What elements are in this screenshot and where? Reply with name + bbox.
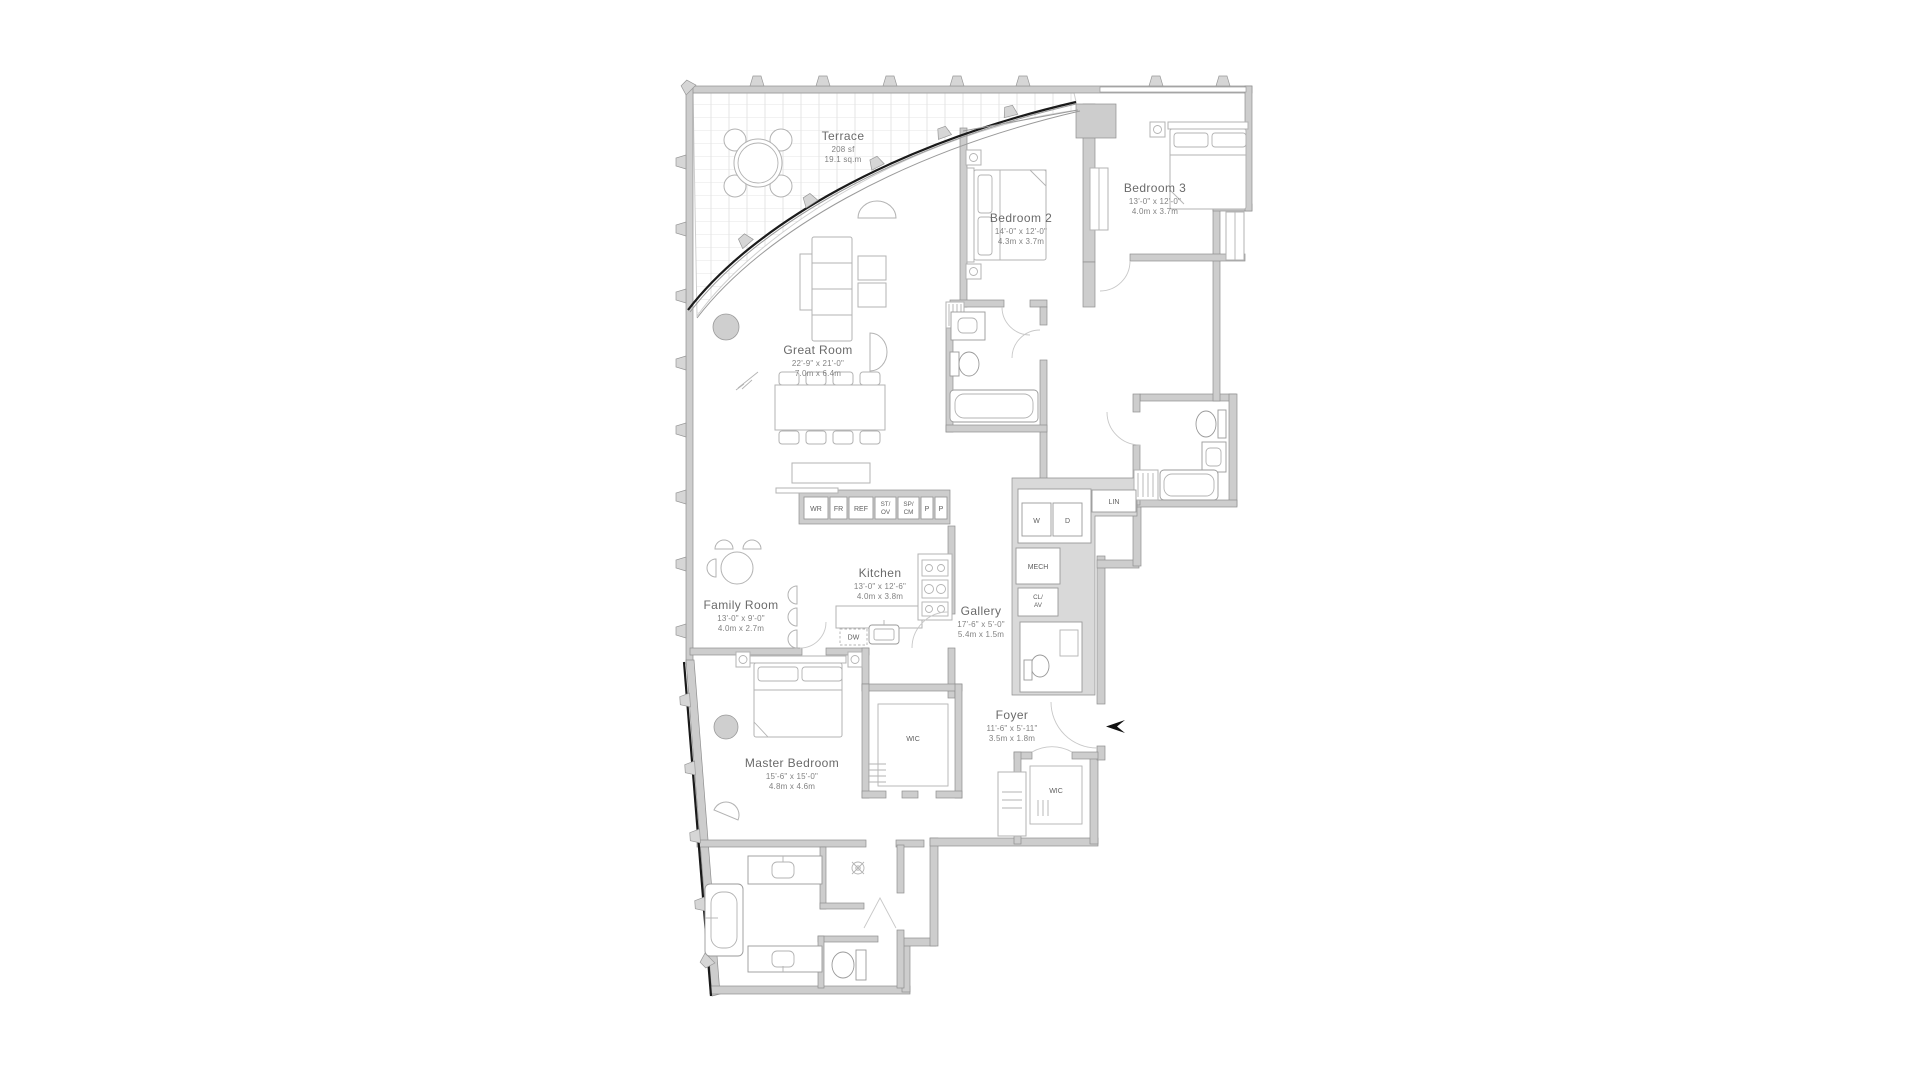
armchair	[714, 802, 739, 820]
telescope-icon	[736, 372, 758, 390]
appliance-label-cm: CM	[904, 509, 914, 516]
family-table	[721, 552, 753, 584]
svg-text:17'-6" x 5'-0": 17'-6" x 5'-0"	[957, 620, 1005, 629]
ottoman	[858, 283, 886, 307]
headboard	[967, 168, 974, 262]
closet-shelves	[868, 764, 886, 782]
stool	[788, 608, 797, 626]
vanity	[951, 312, 985, 340]
floor-plan-drawing: WR FR REF ST/ OV SP/ CM P P DW	[0, 0, 1920, 1080]
column	[713, 314, 739, 340]
appliance-label-fr: FR	[834, 506, 843, 513]
label-gallery: Gallery 17'-6" x 5'-0" 5.4m x 1.5m	[957, 604, 1005, 639]
label-foyer: Foyer 11'-6" x 5'-11" 3.5m x 1.8m	[986, 708, 1037, 743]
label-family-room: Family Room 13'-0" x 9'-0" 4.0m x 2.7m	[703, 598, 778, 633]
dryer-label: D	[1065, 518, 1070, 525]
svg-text:4.0m x 2.7m: 4.0m x 2.7m	[718, 624, 764, 633]
svg-text:Bedroom 2: Bedroom 2	[990, 211, 1052, 225]
bath-3-fixtures	[1134, 410, 1226, 500]
headboard	[1168, 122, 1248, 129]
appliance-label-wr: WR	[810, 506, 822, 513]
armchair	[870, 333, 887, 371]
foyer-wic-area: WIC	[998, 766, 1082, 836]
terrace-table	[734, 139, 782, 187]
closet-outline	[878, 704, 948, 786]
svg-text:4.3m x 3.7m: 4.3m x 3.7m	[998, 237, 1044, 246]
dining-table	[775, 385, 885, 430]
stool	[788, 586, 797, 604]
svg-text:13'-0" x 9'-0": 13'-0" x 9'-0"	[717, 614, 765, 623]
armchair	[858, 201, 896, 218]
chair	[707, 559, 716, 577]
nightstand	[848, 652, 862, 667]
headboard	[750, 656, 846, 663]
toilet	[832, 952, 854, 978]
svg-text:4.0m x 3.8m: 4.0m x 3.8m	[857, 592, 903, 601]
mech-label: MECH	[1028, 564, 1049, 571]
toilet	[959, 352, 979, 376]
av-label: AV	[1034, 602, 1043, 609]
powder-toilet	[1031, 655, 1049, 677]
chair	[743, 540, 761, 549]
dining-chair	[806, 431, 826, 444]
powder-tank	[1024, 660, 1032, 680]
column	[714, 715, 738, 739]
master-bedroom-furniture	[714, 652, 862, 820]
kitchen-shelf	[776, 488, 838, 493]
svg-text:208 sf: 208 sf	[832, 145, 856, 154]
svg-text:14'-0" x 12'-0": 14'-0" x 12'-0"	[995, 227, 1047, 236]
dining-chair	[860, 372, 880, 385]
toilet-tank	[856, 950, 866, 980]
appliance-label-sp: SP/	[903, 501, 913, 508]
bathtub	[950, 390, 1038, 422]
nightstand	[966, 150, 981, 165]
toilet-tank	[1218, 410, 1226, 438]
appliance-label-ov: OV	[881, 509, 891, 516]
cooktop-counter	[918, 554, 952, 620]
label-bedroom-3: Bedroom 3 13'-0" x 12'-0" 4.0m x 3.7m	[1124, 181, 1186, 216]
nightstand	[1150, 122, 1165, 137]
svg-text:4.0m x 3.7m: 4.0m x 3.7m	[1132, 207, 1178, 216]
svg-text:15'-6" x 15'-0": 15'-6" x 15'-0"	[766, 772, 818, 781]
master-wic: WIC	[868, 704, 948, 786]
label-bedroom-2: Bedroom 2 14'-0" x 12'-0" 4.3m x 3.7m	[990, 211, 1052, 246]
stool	[788, 630, 797, 648]
svg-text:19.1 sq.m: 19.1 sq.m	[825, 155, 862, 164]
appliance-label-ref: REF	[854, 506, 868, 513]
svg-text:Gallery: Gallery	[961, 604, 1002, 618]
svg-text:4.8m x 4.6m: 4.8m x 4.6m	[769, 782, 815, 791]
cl-label: CL/	[1033, 594, 1043, 601]
svg-text:13'-0" x 12'-6": 13'-0" x 12'-6"	[854, 582, 906, 591]
svg-text:13'-0" x 12'-0": 13'-0" x 12'-0"	[1129, 197, 1181, 206]
dining-chair	[833, 431, 853, 444]
powder-room	[1020, 622, 1082, 692]
floor-plan-page: WR FR REF ST/ OV SP/ CM P P DW	[0, 0, 1920, 1080]
svg-text:Master Bedroom: Master Bedroom	[745, 756, 839, 770]
foyer-wic-label: WIC	[1049, 788, 1063, 795]
label-master-bedroom: Master Bedroom 15'-6" x 15'-0" 4.8m x 4.…	[745, 756, 839, 791]
svg-text:7.0m x 6.4m: 7.0m x 6.4m	[795, 369, 841, 378]
svg-text:Great Room: Great Room	[783, 343, 852, 357]
nightstand	[736, 652, 750, 667]
family-room-furniture	[707, 540, 761, 584]
bath-2-fixtures	[950, 312, 1038, 422]
kitchen-counter	[792, 463, 870, 483]
appliance-label-st: ST/	[881, 501, 891, 508]
appliance-row: WR FR REF ST/ OV SP/ CM P P	[804, 497, 947, 519]
vanity	[748, 946, 822, 972]
structural-block	[1076, 104, 1116, 138]
kitchen-sink	[869, 625, 899, 644]
svg-text:Bedroom 3: Bedroom 3	[1124, 181, 1186, 195]
vanity	[748, 856, 822, 884]
hangers	[1038, 800, 1048, 816]
svg-text:Kitchen: Kitchen	[859, 566, 902, 580]
toilet-tank	[950, 352, 959, 376]
svg-text:3.5m x 1.8m: 3.5m x 1.8m	[989, 734, 1035, 743]
chair	[715, 540, 733, 549]
dining-chair	[860, 431, 880, 444]
linen-label: LIN	[1109, 499, 1120, 506]
appliance-label-p1: P	[925, 506, 930, 513]
svg-text:Terrace: Terrace	[822, 129, 865, 143]
master-bath-fixtures	[705, 856, 866, 980]
entry-arrow	[1106, 720, 1125, 733]
nightstand	[966, 264, 981, 279]
washer-label: W	[1033, 518, 1040, 525]
hall-closet	[998, 772, 1026, 836]
svg-text:22'-9" x 21'-0": 22'-9" x 21'-0"	[792, 359, 844, 368]
sofa-table	[800, 254, 812, 310]
svg-text:Family Room: Family Room	[703, 598, 778, 612]
window-band	[1100, 87, 1246, 92]
ottoman	[858, 256, 886, 280]
svg-text:5.4m x 1.5m: 5.4m x 1.5m	[958, 630, 1004, 639]
dishwasher-label: DW	[848, 635, 860, 642]
label-kitchen: Kitchen 13'-0" x 12'-6" 4.0m x 3.8m	[854, 566, 906, 601]
appliance-label-p2: P	[939, 506, 944, 513]
svg-text:Foyer: Foyer	[996, 708, 1029, 722]
master-wic-label: WIC	[906, 736, 920, 743]
toilet	[1196, 411, 1216, 437]
svg-text:11'-6" x 5'-11": 11'-6" x 5'-11"	[986, 724, 1037, 733]
dining-chair	[779, 431, 799, 444]
